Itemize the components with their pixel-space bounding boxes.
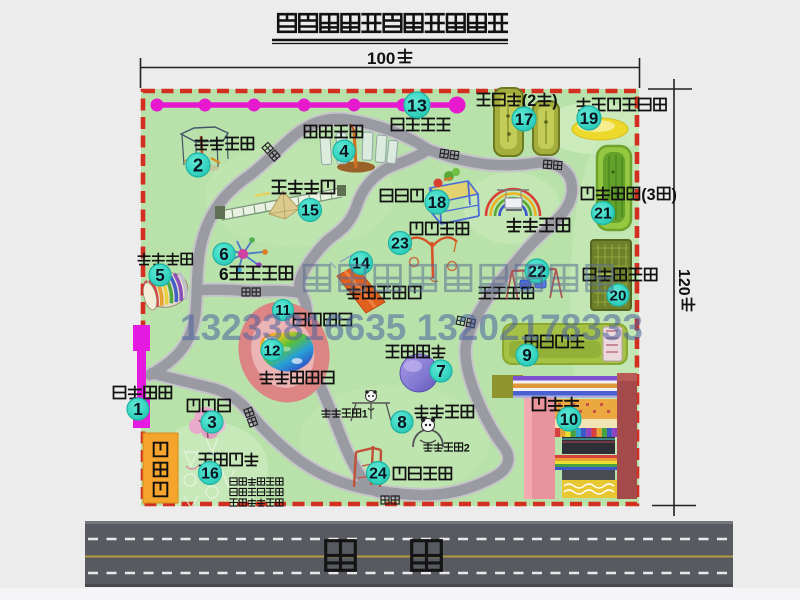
svg-text:9: 9	[522, 346, 532, 365]
svg-text:): )	[552, 92, 557, 110]
svg-text:16: 16	[201, 466, 219, 483]
svg-text:24: 24	[369, 466, 387, 483]
svg-text:4: 4	[339, 142, 349, 161]
svg-text:19: 19	[580, 109, 598, 128]
svg-text:23: 23	[391, 236, 409, 253]
svg-text:21: 21	[594, 206, 612, 223]
svg-text:1: 1	[362, 409, 368, 421]
svg-text:6: 6	[219, 245, 229, 264]
svg-text:7: 7	[436, 362, 446, 381]
svg-text:1: 1	[133, 400, 143, 419]
svg-text:): )	[672, 186, 677, 204]
svg-text:13233816635 13202178333: 13233816635 13202178333	[180, 307, 643, 348]
svg-text:15: 15	[301, 203, 319, 220]
svg-text:6: 6	[219, 264, 229, 284]
svg-text:5: 5	[155, 266, 165, 285]
svg-text:120: 120	[675, 269, 692, 296]
svg-text:10: 10	[560, 410, 578, 429]
svg-text:100: 100	[367, 49, 395, 68]
svg-text:17: 17	[515, 110, 533, 129]
svg-text:3: 3	[207, 413, 217, 432]
svg-text:8: 8	[397, 413, 407, 432]
svg-text:2: 2	[193, 155, 203, 176]
svg-text:2: 2	[464, 443, 470, 455]
svg-text:(3: (3	[641, 186, 655, 204]
svg-text:18: 18	[428, 193, 446, 212]
svg-text:13: 13	[407, 96, 427, 116]
